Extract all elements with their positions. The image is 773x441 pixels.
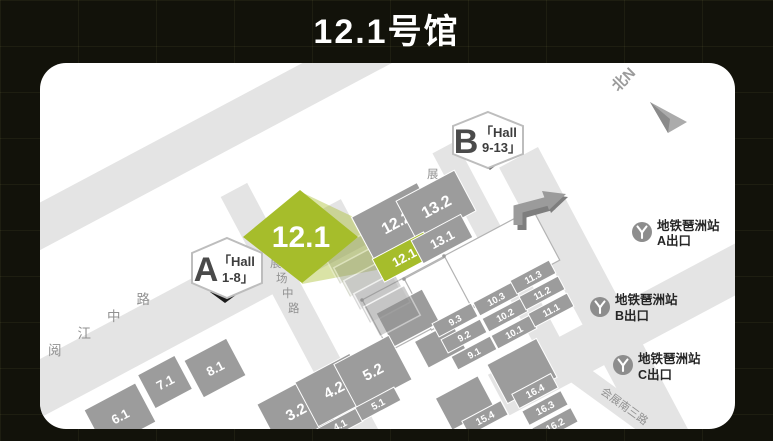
metro-logo-icon [590,297,610,317]
highlight-label: 12.1 [272,221,330,254]
badge-a-letter: A [194,251,219,289]
badge-b-line1: 「Hall [480,125,517,140]
metro-b-station: 地铁琶洲站 [615,292,678,307]
metro-logo-icon [613,355,633,375]
badge-a-line1: 「Hall [218,254,255,269]
map-card: 展场东路 展场中路 阅江中路 会展南三路 [40,63,735,429]
north-label: 北N [609,65,639,95]
hall-8-1: 8.1 [184,338,246,398]
metro-c-station: 地铁琶洲站 [638,351,701,366]
hall-7-1: 7.1 [138,355,193,408]
door-dot [402,277,406,281]
page-background: 12.1号馆 展场东路 展场中路 阅江中路 会展南三路 [0,0,773,441]
metro-logo-icon [632,222,652,242]
metro-a-exit: A出口 [657,233,691,248]
page-title: 12.1号馆 [0,4,773,53]
door-dot [442,254,446,258]
metro-a-station: 地铁琶洲站 [657,218,720,233]
metro-c-exit: C出口 [638,367,672,382]
north-indicator: 北N [609,65,687,133]
badge-b-line2: 9-13」 [482,140,521,155]
badge-a-line2: 1-8」 [222,270,254,285]
metro-b-exit: B出口 [615,308,649,323]
badge-b-letter: B [454,123,479,161]
metro-exit-a: 地铁琶洲站 A出口 [632,218,720,248]
site-map: 展场东路 展场中路 阅江中路 会展南三路 [40,63,735,429]
